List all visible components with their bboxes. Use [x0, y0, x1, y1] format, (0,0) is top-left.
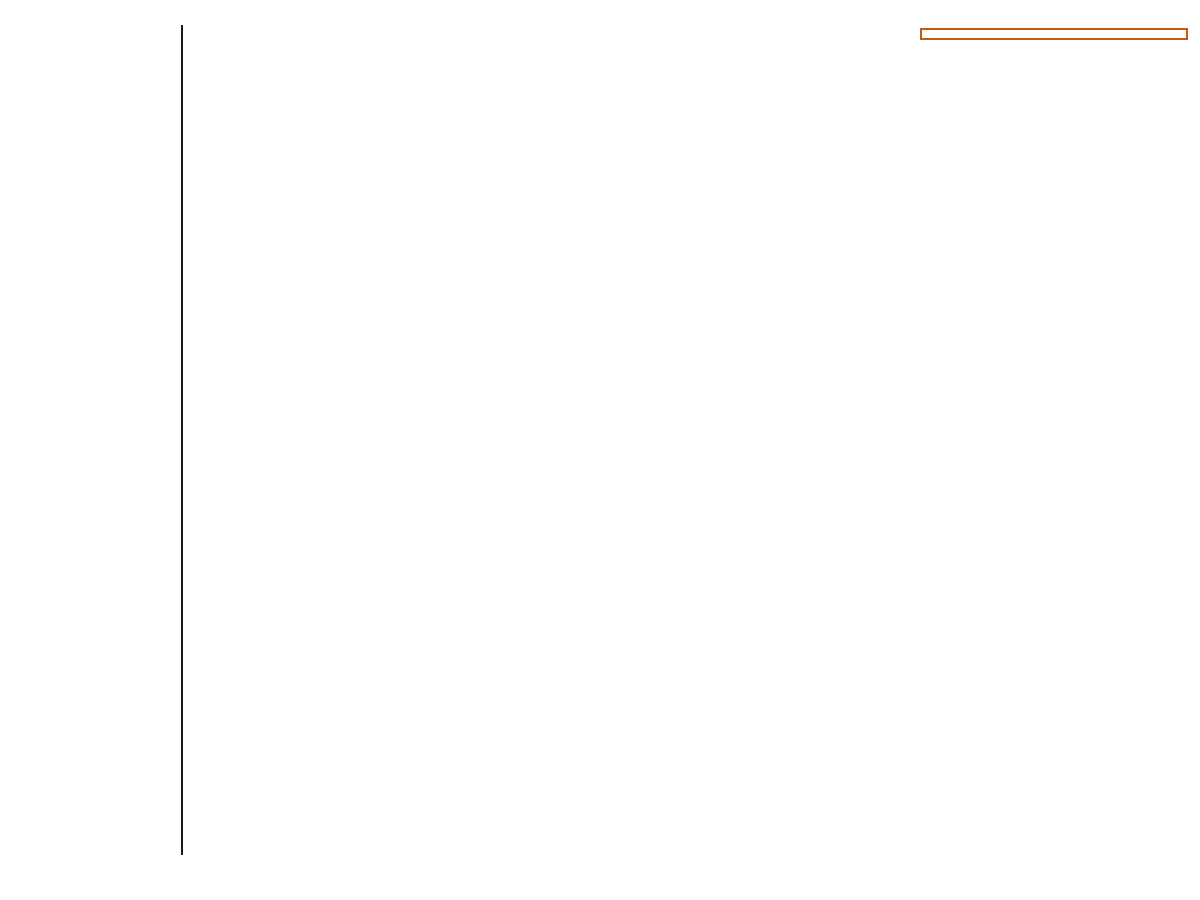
- vertical-divider: [181, 25, 183, 855]
- iterations-info-box: [920, 28, 1188, 40]
- diagram-canvas: [0, 0, 1200, 900]
- connector-lines: [0, 0, 1200, 900]
- title-block: [340, 24, 890, 30]
